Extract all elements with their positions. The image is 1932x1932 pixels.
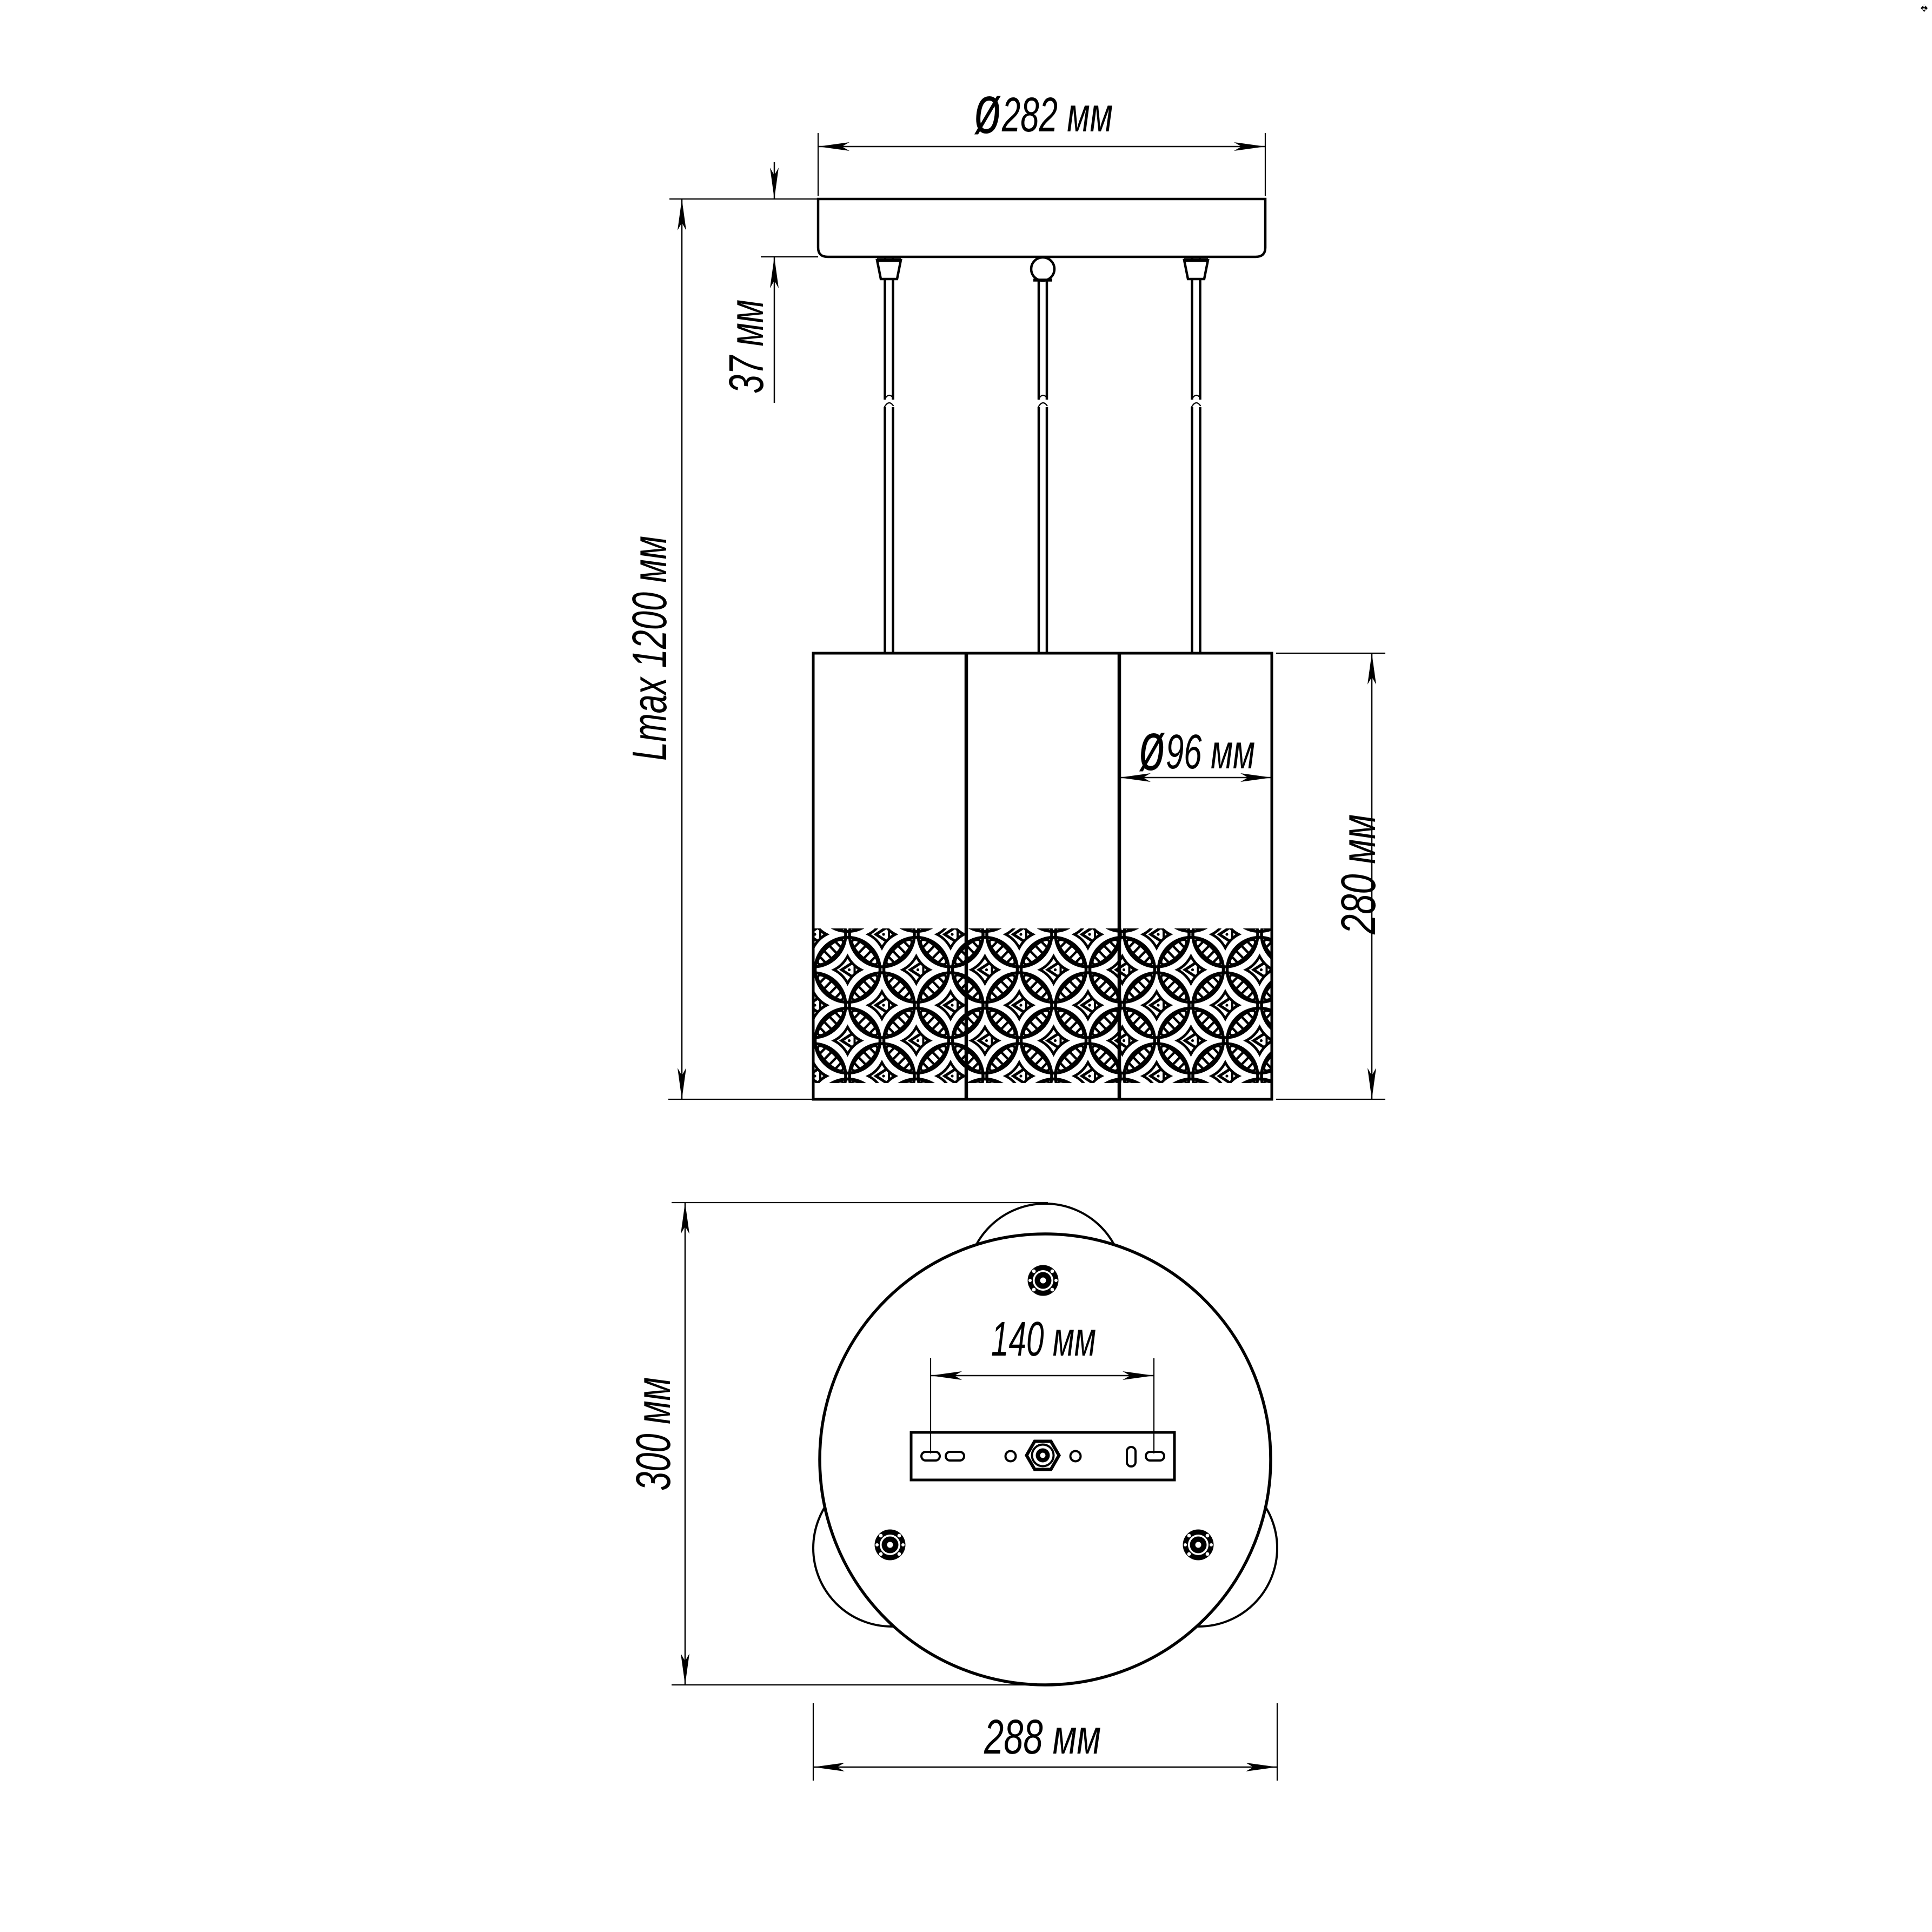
svg-text:Lmax 1200 мм: Lmax 1200 мм xyxy=(623,536,677,761)
svg-text:300 мм: 300 мм xyxy=(627,1377,681,1491)
svg-text:288 мм: 288 мм xyxy=(984,1710,1101,1764)
svg-text:280 мм: 280 мм xyxy=(1332,814,1386,935)
svg-text:140 мм: 140 мм xyxy=(991,1312,1096,1366)
svg-text:37 мм: 37 мм xyxy=(720,300,774,394)
